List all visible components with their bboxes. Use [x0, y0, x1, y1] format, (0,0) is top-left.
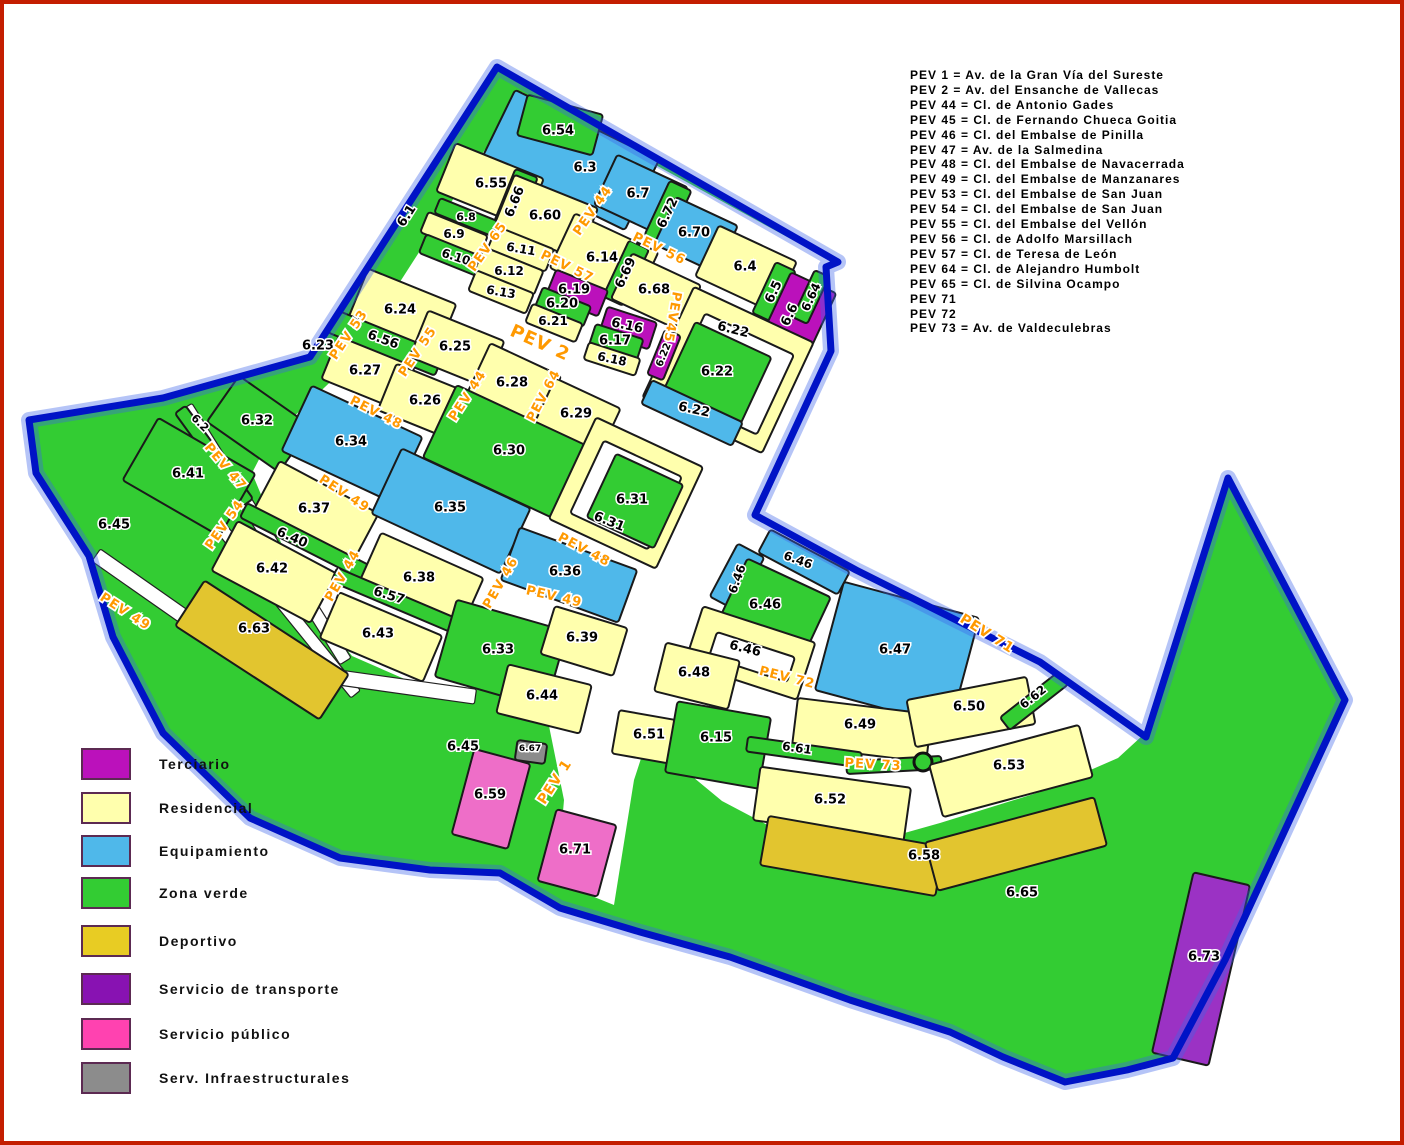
parcel-label-6.55: 6.55 [475, 177, 507, 192]
parcel-label-6.68: 6.68 [638, 283, 670, 298]
parcel-label-6.52: 6.52 [814, 793, 846, 808]
street-key-line: PEV 71 [910, 292, 1185, 307]
parcel-label-6.37: 6.37 [298, 502, 330, 517]
parcel-label-6.35: 6.35 [434, 501, 466, 516]
street-key-line: PEV 54 = Cl. del Embalse de San Juan [910, 202, 1185, 217]
parcel-label-6.8: 6.8 [456, 211, 476, 224]
street-key-line: PEV 56 = Cl. de Adolfo Marsillach [910, 232, 1185, 247]
parcel-label-6.4: 6.4 [733, 260, 756, 275]
parcel-label-6.9: 6.9 [443, 227, 464, 241]
urban-plan-map-page: 6.16.36.546.556.666.606.76.726.706.86.96… [0, 0, 1404, 1145]
parcel-label-6.7: 6.7 [626, 187, 649, 202]
parcel-label-6.28: 6.28 [496, 376, 528, 391]
parcel-label-6.24: 6.24 [384, 303, 416, 318]
street-key-line: PEV 72 [910, 307, 1185, 322]
parcel-label-6.54: 6.54 [542, 124, 574, 139]
street-key-line: PEV 49 = Cl. del Embalse de Manzanares [910, 172, 1185, 187]
parcel-label-6.60: 6.60 [529, 209, 561, 224]
street-key-line: PEV 47 = Av. de la Salmedina [910, 143, 1185, 158]
parcel-label-6.32: 6.32 [241, 414, 273, 429]
parcel-label-6.44: 6.44 [526, 689, 558, 704]
parcel-label-6.45: 6.45 [98, 518, 130, 533]
parcel-label-6.50: 6.50 [953, 700, 985, 715]
parcel-label-6.53: 6.53 [993, 759, 1025, 774]
parcel-label-6.15: 6.15 [700, 731, 732, 746]
parcel-label-6.43: 6.43 [362, 627, 394, 642]
street-key: PEV 1 = Av. de la Gran Vía del SurestePE… [910, 68, 1185, 336]
parcel-label-6.70: 6.70 [678, 226, 710, 241]
street-key-line: PEV 48 = Cl. del Embalse de Navacerrada [910, 157, 1185, 172]
street-key-line: PEV 57 = Cl. de Teresa de León [910, 247, 1185, 262]
parcel-label-6.26: 6.26 [409, 394, 441, 409]
parcel-label-6.21: 6.21 [538, 314, 568, 328]
parcel-label-6.63: 6.63 [238, 622, 270, 637]
parcel-label-6.59: 6.59 [474, 788, 506, 803]
parcel-label-6.47: 6.47 [879, 643, 911, 658]
parcel-label-6.71: 6.71 [559, 843, 591, 858]
parcel-label-6.48: 6.48 [678, 666, 710, 681]
city-plan-map: 6.16.36.546.556.666.606.76.726.706.86.96… [4, 4, 1400, 1141]
parcel-label-6.65: 6.65 [1006, 886, 1038, 901]
street-key-line: PEV 45 = Cl. de Fernando Chueca Goitia [910, 113, 1185, 128]
parcel-label-6.58: 6.58 [908, 849, 940, 864]
street-key-line: PEV 2 = Av. del Ensanche de Vallecas [910, 83, 1185, 98]
street-key-line: PEV 55 = Cl. del Embalse del Vellón [910, 217, 1185, 232]
parcel-label-6.38: 6.38 [403, 571, 435, 586]
parcel-label-6.67: 6.67 [519, 744, 541, 754]
parcel-label-6.12: 6.12 [494, 264, 524, 278]
parcel-label-6.25: 6.25 [439, 340, 471, 355]
parcel-label-6.46: 6.46 [749, 598, 781, 613]
parcel-label-6.42: 6.42 [256, 562, 288, 577]
parcel-label-6.20: 6.20 [546, 297, 578, 312]
street-key-line: PEV 46 = Cl. del Embalse de Pinilla [910, 128, 1185, 143]
parcel-label-6.30: 6.30 [493, 444, 525, 459]
street-key-line: PEV 73 = Av. de Valdeculebras [910, 321, 1185, 336]
parcel-label-6.33: 6.33 [482, 643, 514, 658]
parcel-label-6.39: 6.39 [566, 631, 598, 646]
parcel-label-6.49: 6.49 [844, 718, 876, 733]
parcel-label-6.3: 6.3 [573, 161, 596, 176]
parcel-label-6.29: 6.29 [560, 407, 592, 422]
parcel-label-6.36: 6.36 [549, 565, 581, 580]
street-key-line: PEV 65 = Cl. de Silvina Ocampo [910, 277, 1185, 292]
parcel-label-6.19: 6.19 [558, 283, 590, 298]
parcel-label-6.14: 6.14 [586, 251, 618, 266]
parcel-label-6.73: 6.73 [1188, 950, 1220, 965]
street-label-pev-73: PEV 73 [844, 756, 902, 774]
parcel-label-6.31: 6.31 [616, 493, 648, 508]
street-key-line: PEV 64 = Cl. de Alejandro Humbolt [910, 262, 1185, 277]
parcel-label-6.22: 6.22 [701, 365, 733, 380]
parcel-label-6.34: 6.34 [335, 435, 367, 450]
street-key-line: PEV 44 = Cl. de Antonio Gades [910, 98, 1185, 113]
street-key-line: PEV 53 = Cl. del Embalse de San Juan [910, 187, 1185, 202]
street-key-line: PEV 1 = Av. de la Gran Vía del Sureste [910, 68, 1185, 83]
parcel-label-6.27: 6.27 [349, 364, 381, 379]
parcel-label-6.17: 6.17 [599, 334, 631, 349]
parcel-label-6.41: 6.41 [172, 467, 204, 482]
parcel-label-6.51: 6.51 [633, 728, 665, 743]
parcel-label-6.45: 6.45 [447, 740, 479, 755]
